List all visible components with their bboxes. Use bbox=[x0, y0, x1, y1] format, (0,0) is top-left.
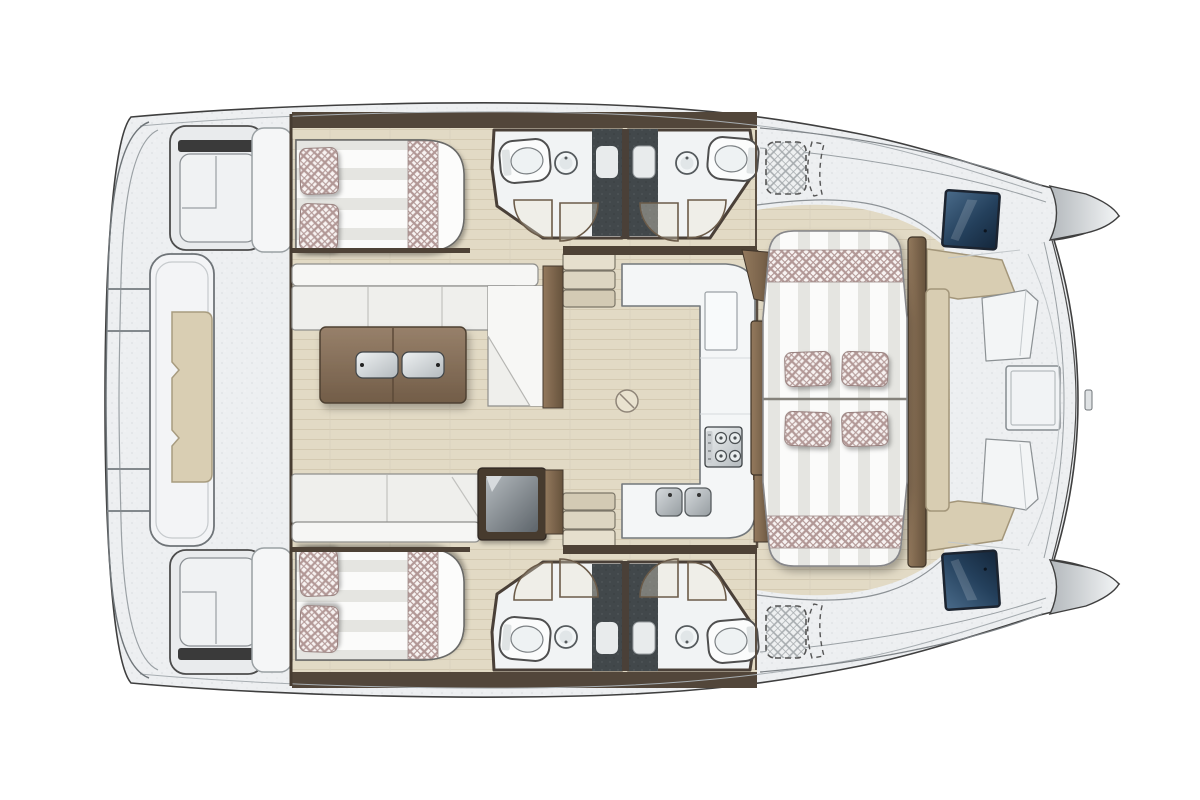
stove bbox=[705, 427, 742, 467]
sofa-seat bbox=[292, 474, 480, 524]
hull-wall-band-port bbox=[292, 112, 757, 130]
forward-cockpit bbox=[751, 228, 926, 568]
floor-fitting bbox=[616, 390, 638, 412]
fridge-side-wood bbox=[545, 470, 563, 534]
bed-pillow bbox=[299, 147, 339, 194]
sofa-backrest bbox=[292, 522, 480, 542]
sofa-side-wood bbox=[543, 266, 563, 408]
hull-window bbox=[942, 190, 1000, 250]
pillow bbox=[841, 411, 888, 447]
fridge-unit bbox=[478, 468, 546, 540]
pillow bbox=[784, 411, 831, 447]
bow-cleat bbox=[1085, 390, 1092, 410]
pillow bbox=[841, 351, 888, 387]
bow-seat-back bbox=[982, 290, 1038, 361]
sink bbox=[676, 152, 698, 174]
coffee-table bbox=[320, 327, 466, 403]
foredeck-hatch bbox=[1006, 366, 1060, 430]
bathroom-divider-wall bbox=[621, 129, 629, 239]
galley-wall-bottom bbox=[563, 545, 757, 554]
bow-bench-cushion-long bbox=[926, 289, 949, 511]
counter-appliance bbox=[705, 292, 737, 350]
yacht-floorplan bbox=[0, 0, 1200, 800]
floorplan-canvas bbox=[0, 0, 1200, 800]
bed-pillow bbox=[299, 203, 339, 250]
sink bbox=[555, 152, 577, 174]
hull-wall-band-starboard bbox=[292, 670, 757, 688]
sofa-backrest bbox=[292, 264, 538, 286]
shower-tray bbox=[633, 146, 655, 178]
shower-tray bbox=[596, 146, 618, 178]
cockpit-long-table bbox=[908, 237, 926, 567]
bed-checker-runner bbox=[408, 141, 438, 251]
sunpad-checker-band bbox=[760, 516, 910, 548]
companionway-steps bbox=[563, 252, 615, 307]
cabin-front-wall bbox=[292, 248, 470, 253]
shower-stall bbox=[592, 129, 622, 236]
bow-cone bbox=[1050, 186, 1119, 240]
toilet bbox=[706, 136, 759, 182]
davit-pad bbox=[172, 312, 212, 482]
galley-wall-top bbox=[563, 246, 757, 255]
pillow bbox=[784, 351, 831, 387]
sunpad-checker-band bbox=[760, 250, 910, 282]
toilet bbox=[498, 138, 551, 184]
aft-bulkhead-panel bbox=[252, 128, 292, 252]
aft-davit-platform bbox=[150, 254, 214, 546]
sofa-seat bbox=[292, 286, 518, 330]
sunpad bbox=[760, 228, 910, 568]
